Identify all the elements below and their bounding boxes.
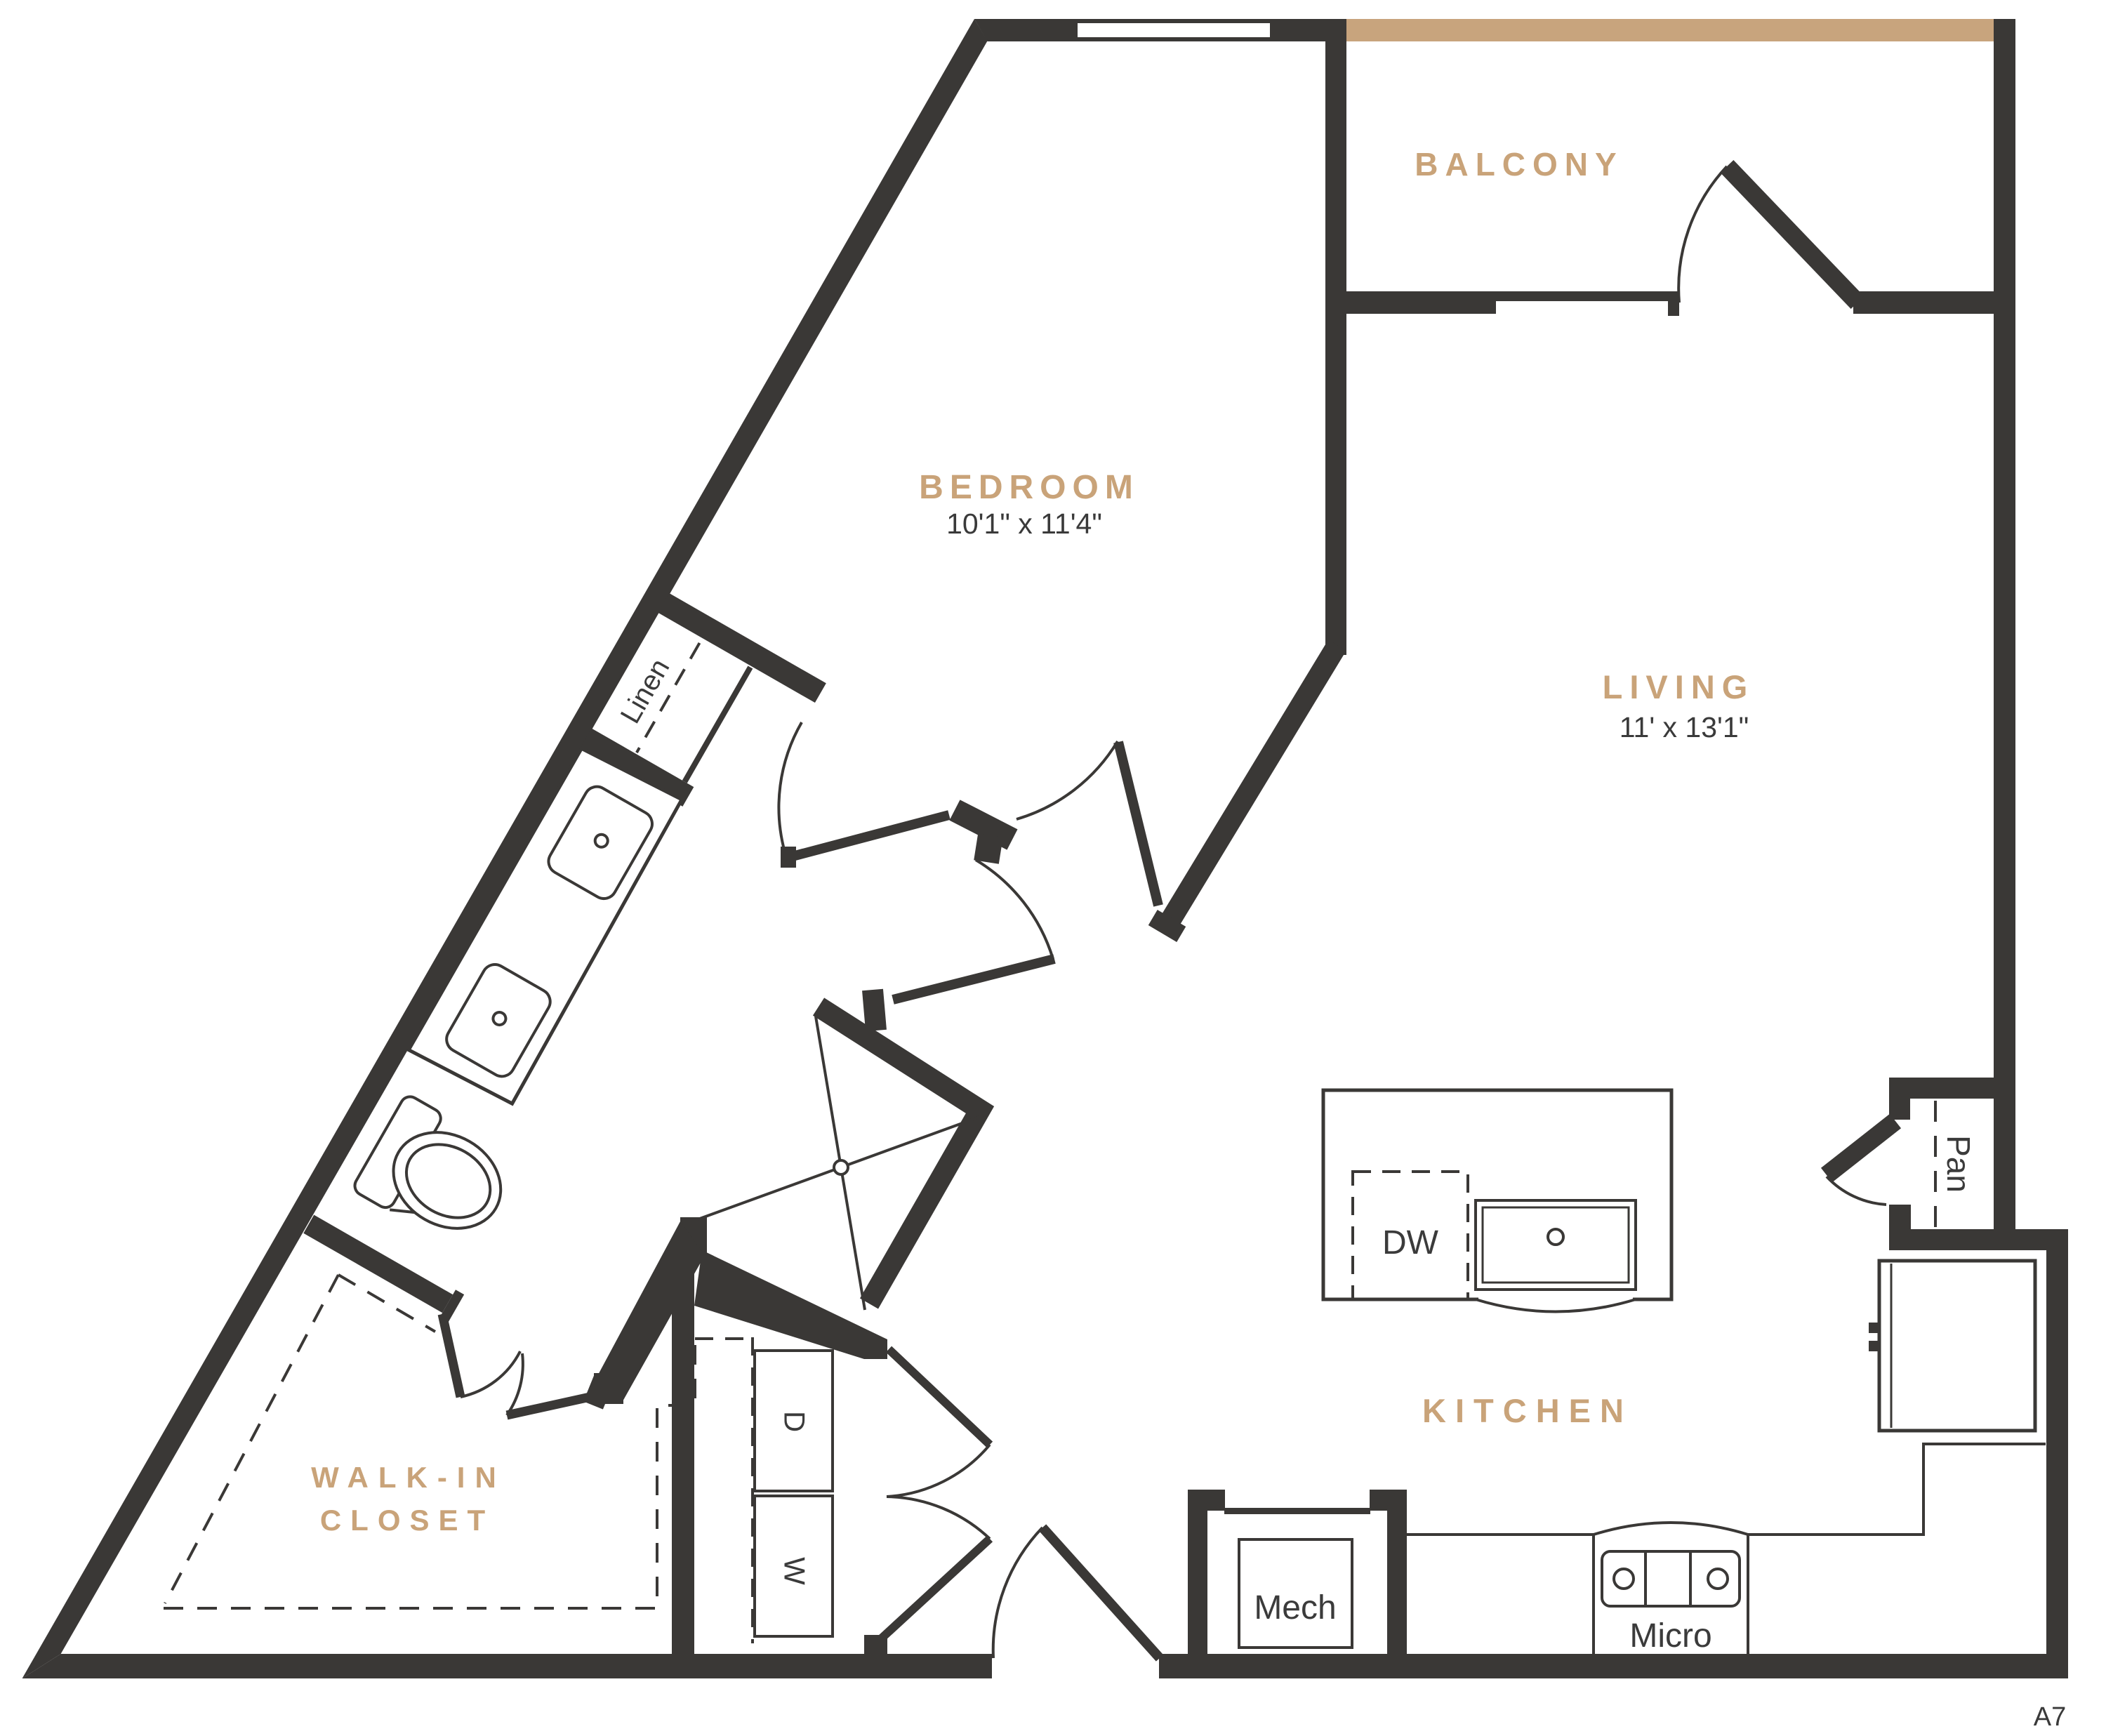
svg-text:DW: DW bbox=[1382, 1224, 1439, 1261]
svg-text:WALK-IN: WALK-IN bbox=[311, 1461, 506, 1494]
svg-text:A7: A7 bbox=[2034, 1702, 2066, 1732]
svg-text:Mech: Mech bbox=[1254, 1589, 1336, 1626]
svg-text:Pan: Pan bbox=[1940, 1135, 1977, 1193]
svg-text:CLOSET: CLOSET bbox=[320, 1504, 494, 1537]
svg-text:KITCHEN: KITCHEN bbox=[1422, 1392, 1633, 1429]
svg-text:BALCONY: BALCONY bbox=[1415, 146, 1623, 183]
svg-text:LIVING: LIVING bbox=[1603, 668, 1755, 705]
svg-text:D: D bbox=[779, 1411, 812, 1432]
svg-text:Micro: Micro bbox=[1629, 1617, 1711, 1655]
svg-text:W: W bbox=[779, 1557, 812, 1585]
svg-text:10'1" x 11'4": 10'1" x 11'4" bbox=[946, 508, 1102, 540]
svg-text:BEDROOM: BEDROOM bbox=[919, 469, 1139, 506]
svg-text:11' x 13'1": 11' x 13'1" bbox=[1620, 711, 1749, 743]
